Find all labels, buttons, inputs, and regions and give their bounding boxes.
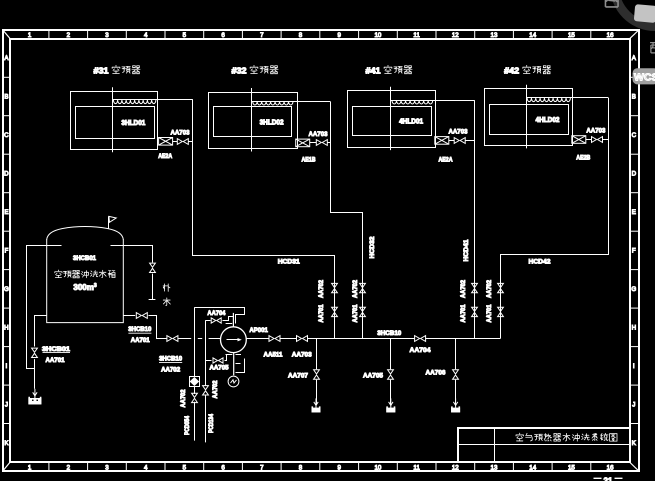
svg-text:3HCB10: 3HCB10: [159, 355, 182, 362]
svg-text:2: 2: [67, 465, 71, 472]
svg-text:AA701: AA701: [318, 304, 325, 322]
svg-text:300m3: 300m3: [73, 283, 96, 292]
svg-text:4HLD02: 4HLD02: [536, 117, 560, 124]
svg-text:AP001: AP001: [249, 327, 268, 334]
svg-text:13: 13: [491, 465, 498, 472]
svg-text:11: 11: [413, 465, 420, 472]
svg-text:AA701: AA701: [131, 337, 150, 344]
svg-text:21: 21: [604, 477, 613, 481]
svg-text:AA702: AA702: [318, 280, 325, 298]
svg-text:#41: #41: [366, 66, 381, 76]
svg-text:3: 3: [105, 32, 109, 39]
svg-text:10: 10: [374, 32, 381, 39]
svg-text:AA701: AA701: [352, 304, 359, 322]
svg-text:3: 3: [105, 465, 109, 472]
svg-text:AA703: AA703: [309, 131, 328, 138]
svg-text:H: H: [632, 325, 636, 332]
svg-text:WCS: WCS: [634, 72, 655, 84]
svg-text:F: F: [632, 248, 636, 255]
svg-text:AA511: AA511: [264, 351, 283, 358]
svg-text:14: 14: [529, 32, 536, 39]
svg-text:B: B: [4, 94, 8, 101]
svg-text:1: 1: [28, 32, 32, 39]
svg-text:AE2A: AE2A: [439, 157, 453, 164]
svg-text:3HLD01: 3HLD01: [121, 120, 145, 127]
svg-text:3HCB10: 3HCB10: [377, 330, 401, 337]
svg-text:HCD31: HCD31: [278, 258, 300, 265]
svg-text:AA703: AA703: [171, 129, 190, 136]
svg-text:#32: #32: [232, 66, 247, 76]
svg-text:#42: #42: [504, 66, 519, 76]
svg-text:AA702: AA702: [486, 280, 493, 298]
svg-text:9: 9: [337, 465, 341, 472]
svg-text:I: I: [633, 363, 635, 370]
svg-text:13: 13: [491, 32, 498, 39]
svg-text:AA705: AA705: [210, 365, 229, 372]
svg-text:15: 15: [568, 465, 575, 472]
svg-text:6: 6: [221, 465, 225, 472]
svg-text:12: 12: [452, 32, 459, 39]
svg-text:AA701: AA701: [486, 304, 493, 322]
svg-text:PCD134: PCD134: [208, 414, 215, 433]
svg-text:AA707: AA707: [288, 372, 308, 379]
svg-text:G: G: [4, 286, 9, 293]
svg-text:AA702: AA702: [180, 389, 187, 407]
svg-text:F: F: [5, 248, 9, 255]
svg-text:AA702: AA702: [212, 380, 219, 398]
svg-text:3HCB01: 3HCB01: [42, 346, 71, 353]
svg-text:7: 7: [260, 32, 264, 39]
svg-text:I: I: [6, 363, 8, 370]
svg-text:2: 2: [67, 32, 71, 39]
svg-text:15: 15: [568, 32, 575, 39]
svg-text:14: 14: [529, 465, 536, 472]
svg-text:4: 4: [144, 465, 148, 472]
svg-text:AE2A: AE2A: [158, 153, 172, 160]
svg-text:AA702: AA702: [352, 280, 359, 298]
svg-text:D: D: [4, 171, 9, 178]
svg-text:C: C: [4, 132, 9, 139]
svg-text:AA704: AA704: [207, 310, 225, 317]
svg-text:1: 1: [28, 465, 32, 472]
svg-text:C: C: [632, 132, 637, 139]
svg-text:9: 9: [337, 32, 341, 39]
svg-text:8: 8: [299, 465, 303, 472]
svg-text:4: 4: [144, 32, 148, 39]
svg-text:G: G: [631, 286, 636, 293]
svg-text:AA702: AA702: [460, 280, 467, 298]
svg-text:AA702: AA702: [161, 366, 180, 373]
svg-text:J: J: [5, 402, 8, 409]
svg-text:5: 5: [183, 32, 187, 39]
svg-text:AA705: AA705: [363, 372, 383, 379]
svg-text:3HCB10: 3HCB10: [128, 326, 151, 333]
svg-text:AA704: AA704: [410, 347, 431, 354]
svg-text:7: 7: [260, 465, 264, 472]
svg-text:AA703: AA703: [449, 128, 468, 135]
svg-text:12: 12: [452, 465, 459, 472]
svg-text:16: 16: [607, 465, 614, 472]
svg-text:E: E: [632, 209, 636, 216]
svg-text:#31: #31: [94, 66, 109, 76]
svg-text:AE1B: AE1B: [302, 157, 316, 164]
svg-text:D: D: [632, 171, 637, 178]
svg-text:AA701: AA701: [46, 357, 65, 364]
svg-text:11: 11: [413, 32, 420, 39]
svg-text:5: 5: [183, 465, 187, 472]
svg-text:AE2B: AE2B: [576, 155, 590, 162]
svg-text:E: E: [4, 209, 8, 216]
svg-text:16: 16: [607, 32, 614, 39]
svg-text:AA706: AA706: [426, 370, 446, 377]
svg-text:AA701: AA701: [460, 304, 467, 322]
svg-text:H: H: [4, 325, 8, 332]
svg-text:B: B: [632, 94, 636, 101]
svg-text:3HCB01: 3HCB01: [73, 255, 96, 262]
svg-text:AA703: AA703: [292, 351, 312, 358]
svg-text:3HLD02: 3HLD02: [260, 120, 284, 127]
svg-text:J: J: [632, 402, 635, 409]
svg-text:6: 6: [221, 32, 225, 39]
svg-text:AA703: AA703: [586, 128, 605, 135]
svg-text:HCD41: HCD41: [463, 239, 470, 261]
svg-text:8: 8: [299, 32, 303, 39]
svg-text:4HLD01: 4HLD01: [399, 119, 423, 126]
svg-text:HCD32: HCD32: [369, 236, 376, 258]
svg-text:PCD054: PCD054: [184, 416, 191, 435]
svg-text:10: 10: [374, 465, 381, 472]
svg-text:HCD42: HCD42: [529, 259, 551, 266]
